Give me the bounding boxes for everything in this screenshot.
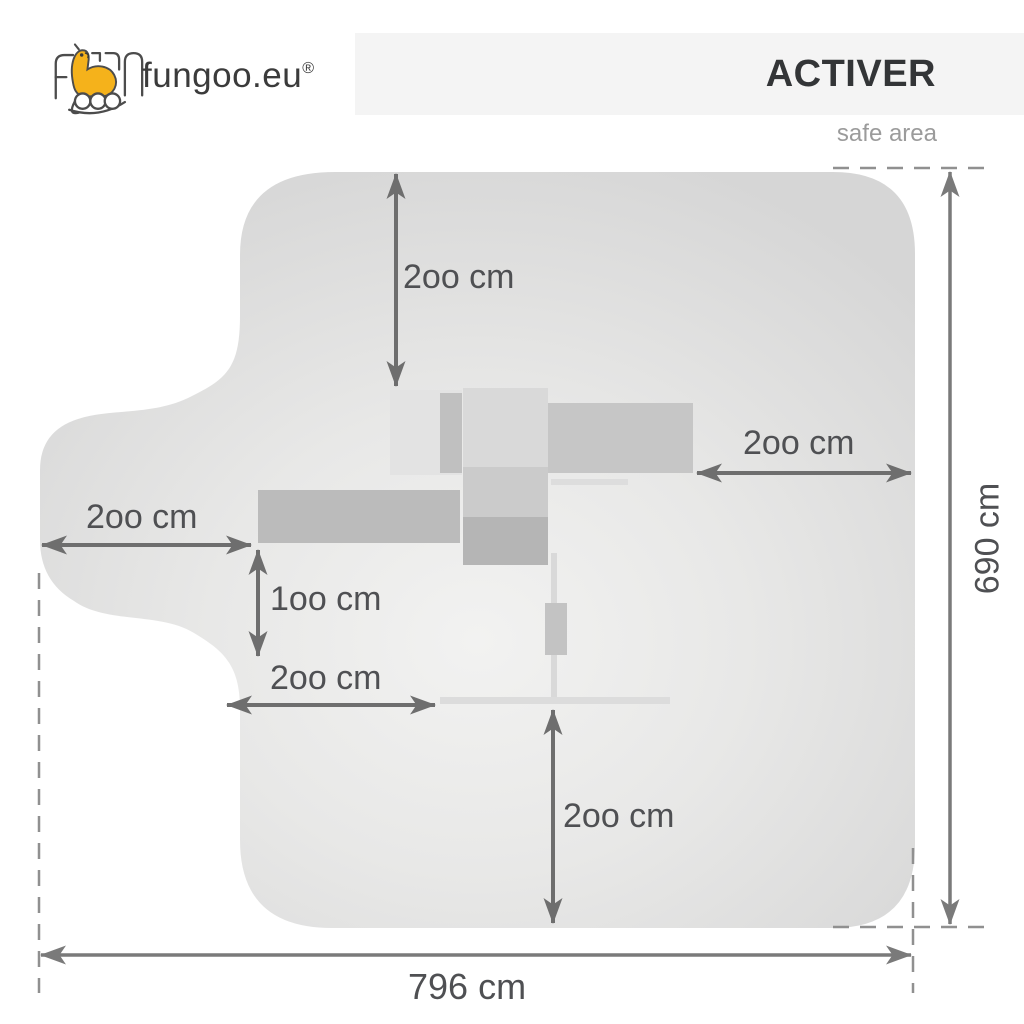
product-title: ACTIVER — [766, 53, 936, 96]
playset-bottom-bar — [440, 697, 670, 704]
playset-left-beam — [258, 490, 460, 543]
playset-right-wing — [548, 403, 693, 473]
playset-crossbar-right — [551, 479, 628, 485]
brand-text: fungoo.eu® — [142, 56, 315, 96]
safe-area-caption: safe area — [637, 120, 937, 148]
dimension-label-total-height: 690 cm — [969, 469, 1008, 609]
dimension-label-bottom: 2oo cm — [563, 797, 675, 836]
fungoo-logo — [50, 40, 146, 120]
mascot-body — [72, 50, 116, 96]
fungoo-mascot-icon — [50, 40, 146, 120]
dimension-label-right: 2oo cm — [743, 424, 855, 463]
playset-lower-deck — [463, 517, 548, 565]
brand-name: fungoo.eu — [142, 56, 302, 95]
dimension-label-left-lower: 2oo cm — [270, 659, 382, 698]
dimension-label-left-small: 1oo cm — [270, 580, 382, 619]
playset-slide-seat — [545, 603, 567, 655]
dimension-label-total-width: 796 cm — [408, 966, 526, 1008]
brand-registered-mark: ® — [302, 60, 314, 77]
dimension-label-left: 2oo cm — [86, 498, 198, 537]
title-bar: ACTIVER — [355, 33, 1024, 115]
playset-ladder-strip — [440, 393, 462, 473]
playset-tower-roof — [463, 388, 548, 467]
playset-mid-deck — [463, 467, 548, 517]
dimension-label-top: 2oo cm — [403, 258, 515, 297]
